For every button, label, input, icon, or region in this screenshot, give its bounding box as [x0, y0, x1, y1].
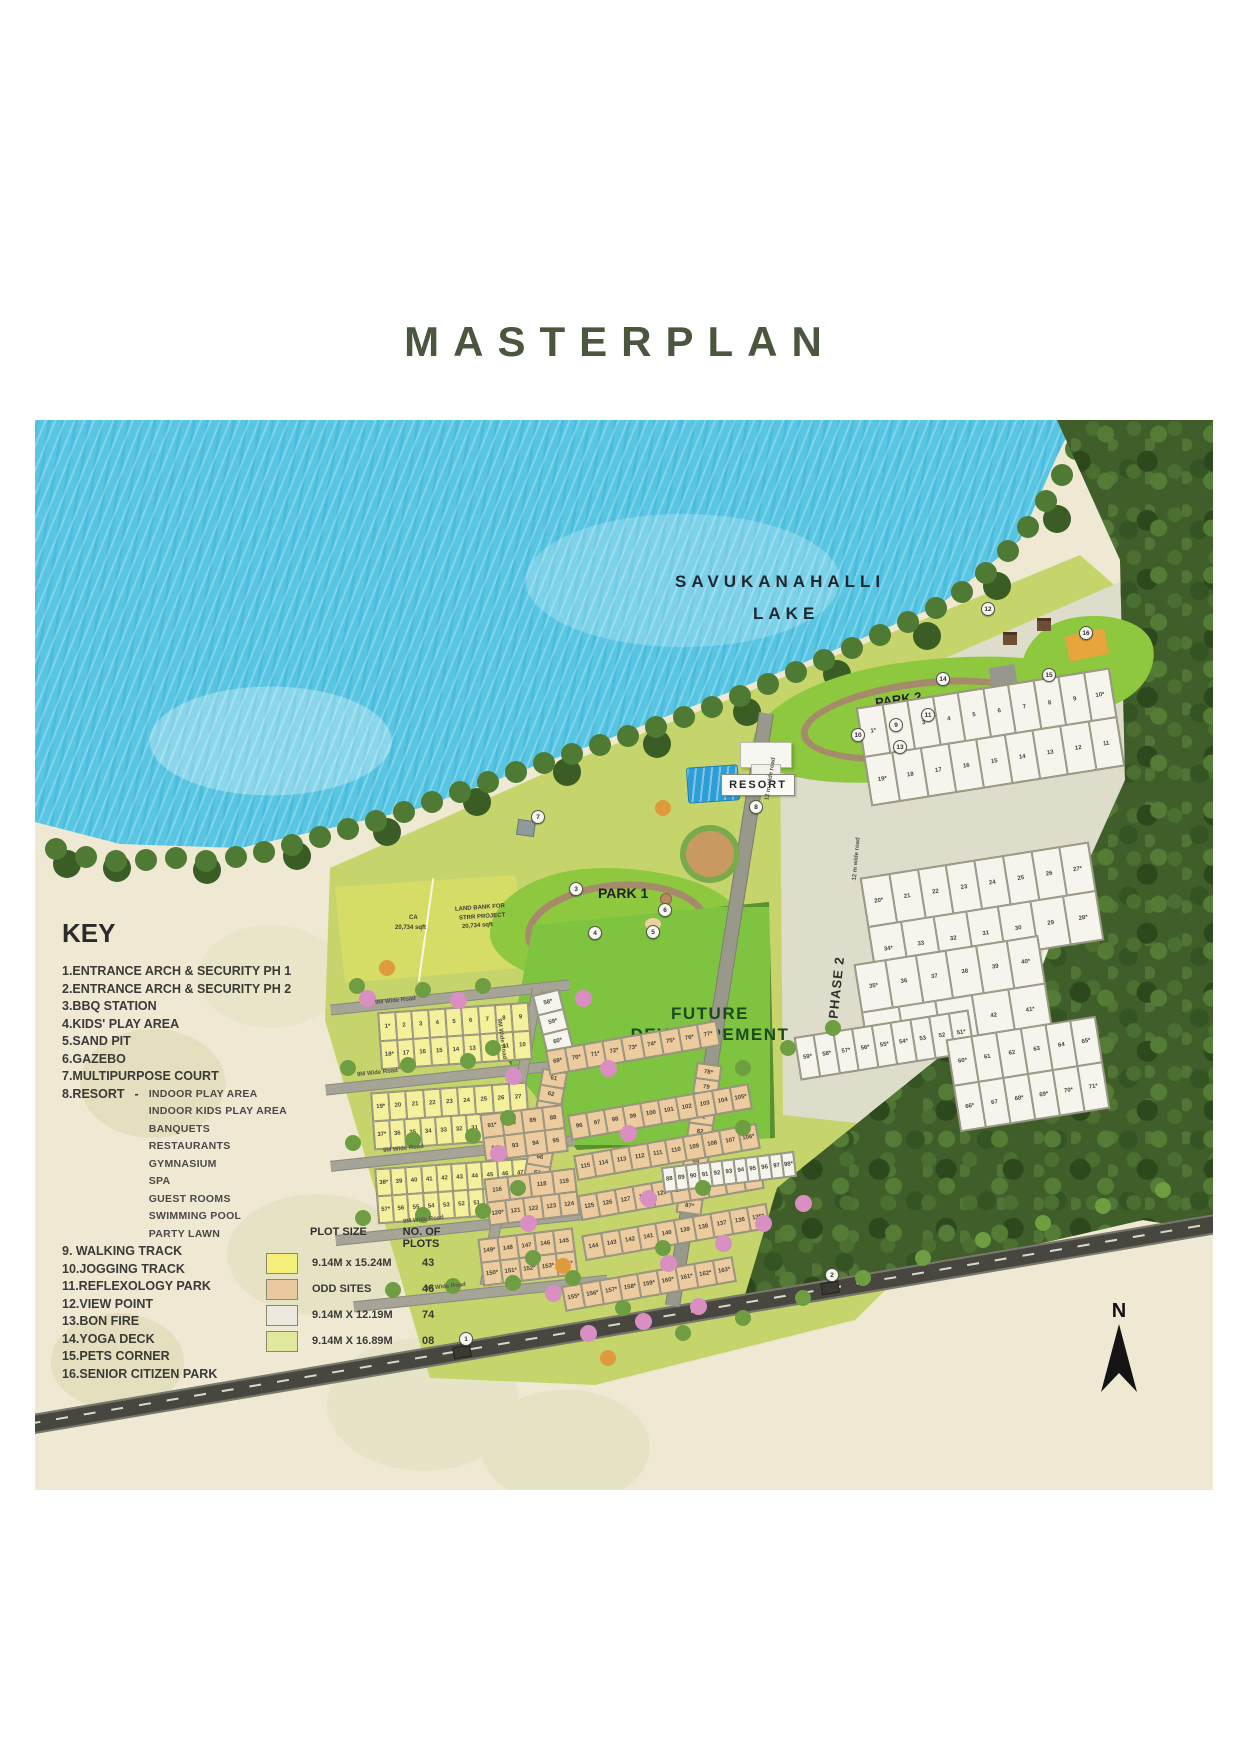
map-marker-8: 8 — [749, 800, 763, 814]
plot-table-header: PLOT SIZE NO. OF PLOTS — [310, 1226, 468, 1250]
plot-color-swatch — [266, 1279, 298, 1300]
plot-count-header: NO. OF PLOTS — [403, 1226, 468, 1250]
plot-count-value: 08 — [422, 1335, 434, 1347]
plot-size-header: PLOT SIZE — [310, 1226, 403, 1250]
key-item: 7.MULTIPURPOSE COURT — [62, 1068, 422, 1086]
key-items: 1.ENTRANCE ARCH & SECURITY PH 12.ENTRANC… — [62, 963, 422, 1086]
resort-amenities: INDOOR PLAY AREAINDOOR KIDS PLAY AREABAN… — [149, 1086, 287, 1244]
plot-table-rows: 9.14M x 15.24M43ODD SITES469.14M X 12.19… — [238, 1250, 468, 1354]
key-item: 1.ENTRANCE ARCH & SECURITY PH 1 — [62, 963, 422, 981]
map-marker-16: 16 — [1079, 626, 1093, 640]
resort-amenity: RESTAURANTS — [149, 1138, 287, 1156]
resort-amenity: BANQUETS — [149, 1121, 287, 1139]
map-marker-4: 4 — [588, 926, 602, 940]
map-marker-13: 13 — [893, 740, 907, 754]
map-marker-5: 5 — [646, 925, 660, 939]
map-marker-3: 3 — [569, 882, 583, 896]
key-item: 16.SENIOR CITIZEN PARK — [62, 1366, 422, 1384]
plot-table-row: ODD SITES46 — [238, 1276, 468, 1302]
map-marker-12: 12 — [981, 602, 995, 616]
key-item: 3.BBQ STATION — [62, 998, 422, 1016]
resort-amenity: SPA — [149, 1173, 287, 1191]
plot-size-value: 9.14M X 12.19M — [312, 1309, 422, 1321]
map-marker-10: 10 — [851, 728, 865, 742]
resort-amenity: INDOOR KIDS PLAY AREA — [149, 1103, 287, 1121]
resort-key-label: 8.RESORT — [62, 1086, 125, 1104]
key-item: 4.KIDS' PLAY AREA — [62, 1016, 422, 1034]
masterplan-page: MASTERPLAN — [0, 0, 1240, 1755]
plot-color-swatch — [266, 1331, 298, 1352]
plot-color-swatch — [266, 1253, 298, 1274]
plot-count-value: 46 — [422, 1283, 434, 1295]
key-item: 5.SAND PIT — [62, 1033, 422, 1051]
map-marker-2: 2 — [825, 1268, 839, 1282]
map-marker-6: 6 — [658, 903, 672, 917]
plot-table-row: 9.14M x 15.24M43 — [238, 1250, 468, 1276]
resort-amenity: GUEST ROOMS — [149, 1191, 287, 1209]
map-marker-11: 11 — [921, 708, 935, 722]
resort-amenity: SWIMMING POOL — [149, 1208, 287, 1226]
page-title: MASTERPLAN — [0, 318, 1240, 366]
map-marker-14: 14 — [936, 672, 950, 686]
key-item: 6.GAZEBO — [62, 1051, 422, 1069]
plot-count-value: 74 — [422, 1309, 434, 1321]
map-marker-15: 15 — [1042, 668, 1056, 682]
map-marker-9: 9 — [889, 718, 903, 732]
plot-size-value: 9.14M X 16.89M — [312, 1335, 422, 1347]
key-item-resort: 8.RESORT - INDOOR PLAY AREAINDOOR KIDS P… — [62, 1086, 422, 1244]
plot-table-row: 9.14M X 16.89M08 — [238, 1328, 468, 1354]
resort-amenity: GYMNASIUM — [149, 1156, 287, 1174]
plot-table-row: 9.14M X 12.19M74 — [238, 1302, 468, 1328]
resort-key-dash: - — [135, 1086, 139, 1104]
map-marker-7: 7 — [531, 810, 545, 824]
plot-size-value: 9.14M x 15.24M — [312, 1257, 422, 1269]
resort-amenity: INDOOR PLAY AREA — [149, 1086, 287, 1104]
plot-size-value: ODD SITES — [312, 1283, 422, 1295]
plot-color-swatch — [266, 1305, 298, 1326]
plot-count-value: 43 — [422, 1257, 434, 1269]
plot-size-table: PLOT SIZE NO. OF PLOTS 9.14M x 15.24M43O… — [238, 1226, 468, 1354]
key-heading: KEY — [62, 918, 422, 949]
key-item: 2.ENTRANCE ARCH & SECURITY PH 2 — [62, 981, 422, 999]
